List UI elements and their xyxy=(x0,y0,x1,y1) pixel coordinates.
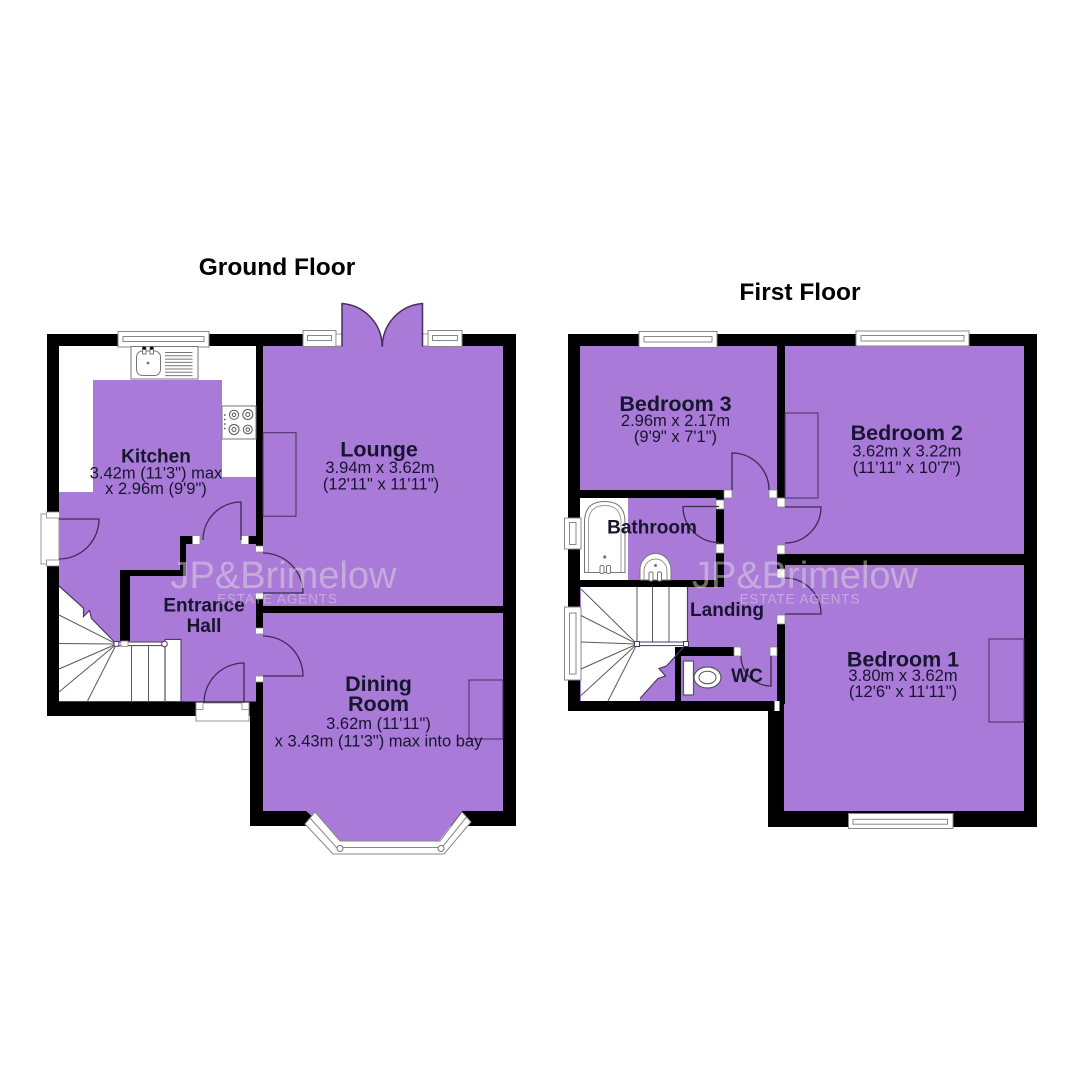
svg-text:3.94m x 3.62m: 3.94m x 3.62m xyxy=(325,459,434,477)
svg-text:(12'6" x 11'11"): (12'6" x 11'11") xyxy=(849,683,957,701)
svg-text:(12'11" x 11'11"): (12'11" x 11'11") xyxy=(323,476,439,494)
svg-text:Ground Floor: Ground Floor xyxy=(199,254,356,281)
svg-text:Bedroom 2: Bedroom 2 xyxy=(851,421,963,445)
svg-text:(9'9" x 7'1"): (9'9" x 7'1") xyxy=(634,428,717,446)
svg-text:ESTATE AGENTS: ESTATE AGENTS xyxy=(217,592,338,607)
svg-text:Bathroom: Bathroom xyxy=(607,518,697,539)
svg-text:First Floor: First Floor xyxy=(739,279,861,306)
svg-text:x 3.43m (11'3") max into bay: x 3.43m (11'3") max into bay xyxy=(275,733,483,751)
svg-text:ESTATE AGENTS: ESTATE AGENTS xyxy=(740,592,861,607)
svg-text:WC: WC xyxy=(731,666,763,687)
svg-text:3.62m (11'11"): 3.62m (11'11") xyxy=(326,715,431,733)
svg-text:Room: Room xyxy=(348,692,409,716)
svg-text:(11'11" x 10'7"): (11'11" x 10'7") xyxy=(853,459,961,477)
svg-text:3.62m x 3.22m: 3.62m x 3.22m xyxy=(852,443,961,461)
svg-text:x 2.96m (9'9"): x 2.96m (9'9") xyxy=(105,480,207,498)
svg-text:Lounge: Lounge xyxy=(340,438,418,462)
svg-text:Hall: Hall xyxy=(187,616,222,637)
